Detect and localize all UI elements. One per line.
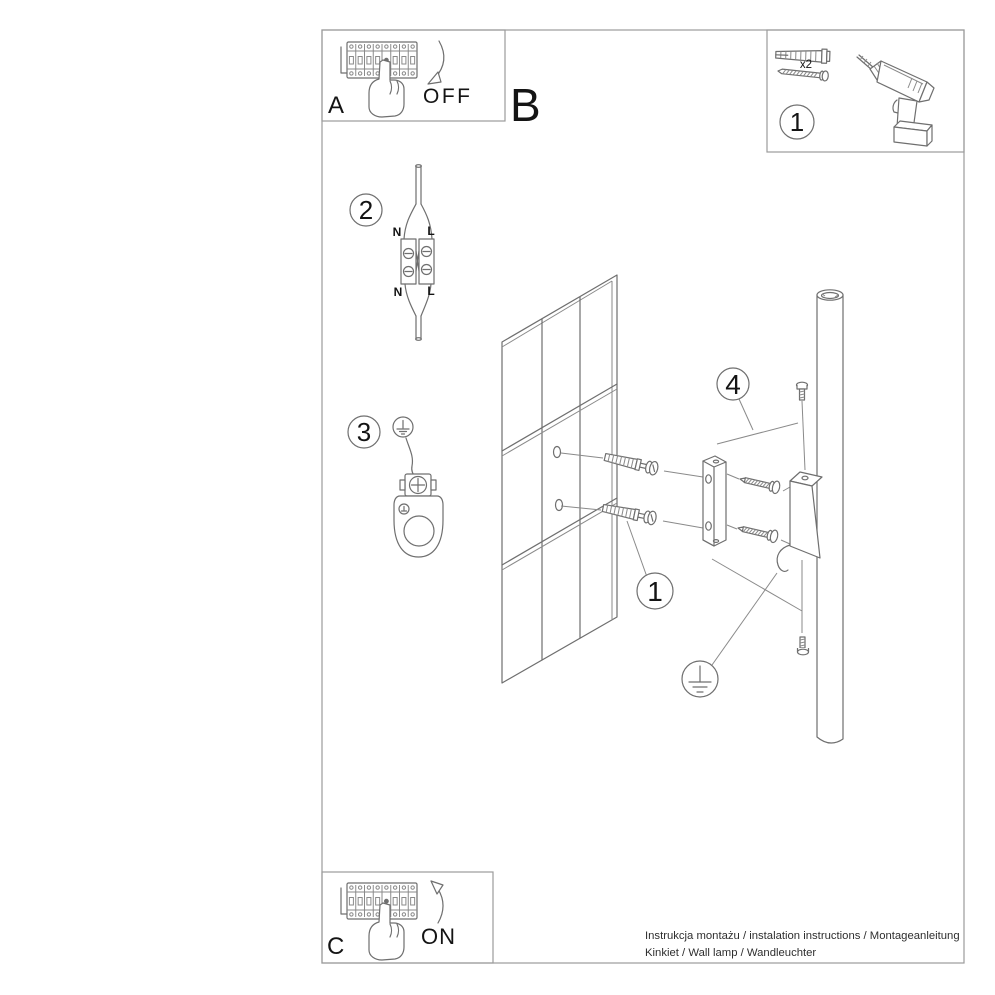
- grounding-callout-number: 3: [357, 417, 371, 447]
- set-screw-ref-line-top: [717, 423, 798, 444]
- drill-icon: [857, 55, 934, 146]
- section-power-off: A OFF: [328, 41, 473, 119]
- mounting-screw-top: [739, 473, 781, 494]
- tools-required: x2 1: [776, 48, 934, 146]
- on-arrowhead-icon: [431, 881, 443, 894]
- set-screw-bottom: [798, 560, 809, 655]
- step-wiring: 2 N L N L: [350, 165, 435, 341]
- mounting-screw-bottom: [737, 522, 779, 543]
- ground-clamp-icon: [394, 474, 443, 557]
- wire-label-l-top: L: [427, 224, 434, 238]
- ground-callout-icon: [682, 661, 718, 697]
- wiring-diagram: [401, 165, 434, 341]
- off-label: OFF: [423, 85, 473, 108]
- set-screw-callout-leader: [739, 399, 753, 430]
- panel-c-box: [322, 872, 493, 963]
- housing-ground-wire: [777, 545, 790, 571]
- off-arrowhead-icon: [428, 72, 441, 84]
- on-label: ON: [421, 924, 456, 949]
- mounting-bracket: [703, 456, 726, 546]
- anchor-callout-leader: [627, 521, 647, 577]
- anchor-callout-number: 1: [647, 576, 663, 607]
- panel-a-label: A: [328, 92, 344, 119]
- section-power-on: C ON: [327, 881, 456, 960]
- panel-b-label: B: [510, 79, 541, 131]
- lamp-tube: [817, 290, 843, 743]
- wiring-callout-number: 2: [359, 195, 373, 225]
- wire-label-l-bottom: L: [427, 284, 434, 298]
- ground-wire: [406, 438, 415, 477]
- footer-line-2: Kinkiet / Wall lamp / Wandleuchter: [645, 947, 816, 959]
- wire-label-n-bottom: N: [394, 285, 403, 299]
- quantity-label: x2: [800, 59, 812, 71]
- wire-label-n-top: N: [393, 225, 402, 239]
- instruction-sheet-page: A OFF B x2 1: [0, 0, 995, 995]
- drill-hole-top: [554, 447, 561, 458]
- wall-anchor-bottom: [602, 501, 658, 525]
- panel-c-label: C: [327, 933, 344, 960]
- step-grounding: 3: [348, 416, 443, 557]
- set-screw-top: [797, 382, 808, 470]
- set-screw-callout-number: 4: [725, 369, 741, 400]
- off-arrow-icon: [435, 41, 444, 78]
- drill-hole-bottom: [556, 500, 563, 511]
- footer: Instrukcja montażu / instalation instruc…: [645, 930, 960, 959]
- panel-a-box: [322, 30, 505, 121]
- ground-callout-leader: [712, 573, 777, 665]
- assembly-diagram: 1: [502, 275, 843, 743]
- pointing-hand-icon: [369, 903, 404, 960]
- terminal-block-left: [401, 239, 416, 284]
- terminal-block-right: [419, 239, 434, 284]
- footer-line-1: Instrukcja montażu / instalation instruc…: [645, 930, 960, 942]
- wall-tiles: [502, 275, 617, 683]
- tools-callout-number: 1: [790, 107, 804, 137]
- instruction-sheet: A OFF B x2 1: [0, 0, 995, 995]
- ground-symbol-icon: [393, 417, 413, 437]
- set-screw-ref-line-bottom: [712, 559, 802, 611]
